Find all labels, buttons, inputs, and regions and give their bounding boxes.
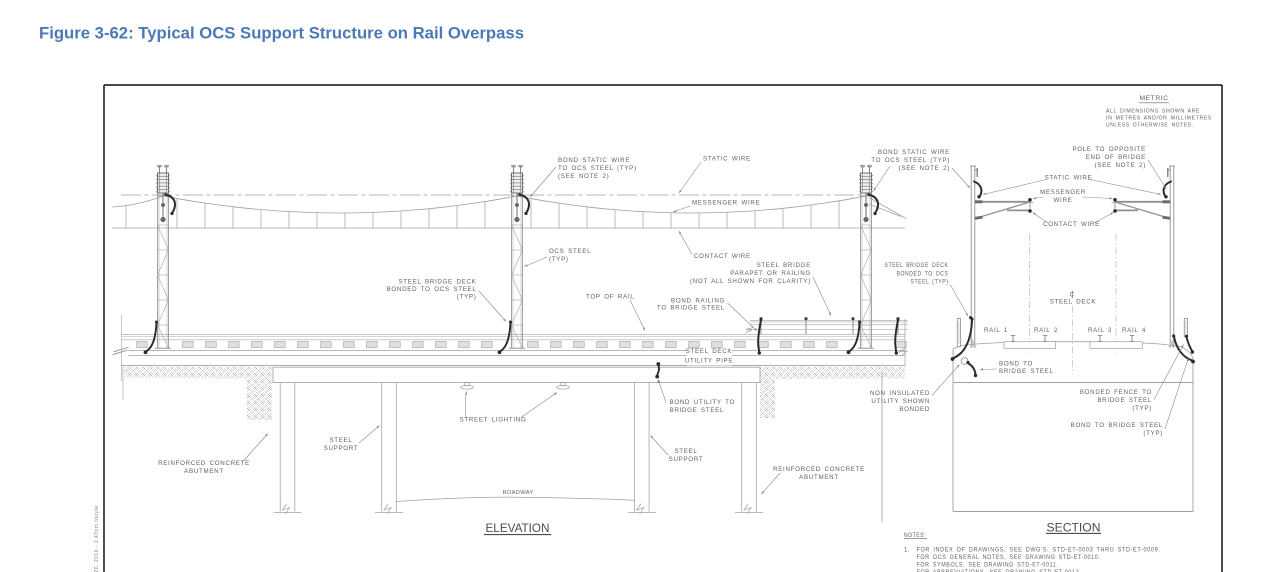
svg-text:(TYP): (TYP) — [457, 294, 477, 301]
svg-text:SUPPORT: SUPPORT — [669, 456, 704, 463]
svg-text:FOR INDEX OF DRAWINGS, SEE DWG: FOR INDEX OF DRAWINGS, SEE DWG'S. STD-ET… — [917, 548, 1161, 554]
svg-text:PARAPET OR RAILING: PARAPET OR RAILING — [730, 270, 811, 277]
svg-text:NON INSULATED: NON INSULATED — [870, 390, 930, 397]
svg-text:BRIDGE STEEL: BRIDGE STEEL — [999, 368, 1054, 375]
svg-text:STEEL (TYP): STEEL (TYP) — [911, 279, 949, 286]
svg-text:BOND TO BRIDGE STEEL: BOND TO BRIDGE STEEL — [1071, 422, 1163, 429]
svg-text:STATIC WIRE: STATIC WIRE — [1045, 175, 1093, 182]
svg-text:UTILITY PIPE: UTILITY PIPE — [685, 358, 733, 365]
svg-text:RAIL 1: RAIL 1 — [984, 327, 1008, 334]
svg-text:POLE TO OPPOSITE: POLE TO OPPOSITE — [1072, 146, 1146, 153]
svg-text:STATIC WIRE: STATIC WIRE — [703, 156, 751, 163]
svg-text:TO BRIDGE STEEL: TO BRIDGE STEEL — [657, 305, 725, 312]
svg-text:1.: 1. — [904, 548, 910, 554]
svg-text:METRIC: METRIC — [1140, 95, 1169, 102]
svg-text:STEEL DECK: STEEL DECK — [1050, 298, 1097, 305]
svg-text:END OF BRIDGE: END OF BRIDGE — [1086, 154, 1146, 161]
svg-text:OCS STEEL: OCS STEEL — [549, 248, 591, 255]
svg-text:UNLESS OTHERWISE NOTED.: UNLESS OTHERWISE NOTED. — [1106, 123, 1194, 129]
svg-text:SUPPORT: SUPPORT — [324, 445, 359, 452]
svg-text:Figure 3-62: Typical OCS Suppo: Figure 3-62: Typical OCS Support Structu… — [39, 24, 524, 42]
svg-text:BONDED TO OCS STEEL: BONDED TO OCS STEEL — [387, 286, 477, 293]
svg-text:BRIDGE STEEL: BRIDGE STEEL — [670, 407, 725, 414]
svg-text:RAIL 2: RAIL 2 — [1034, 327, 1058, 334]
svg-text:ELEVATION: ELEVATION — [486, 521, 550, 535]
svg-text:WIRE: WIRE — [1054, 197, 1073, 204]
svg-text:MESSENGER: MESSENGER — [1040, 189, 1086, 196]
svg-text:STEEL: STEEL — [674, 448, 697, 455]
svg-text:(TYP): (TYP) — [549, 256, 569, 263]
svg-text:STEEL: STEEL — [329, 437, 352, 444]
svg-text:FOR OCS GENERAL NOTES, SEE DRA: FOR OCS GENERAL NOTES, SEE DRAWING STD-E… — [917, 555, 1101, 561]
svg-text:CONTACT WIRE: CONTACT WIRE — [1043, 221, 1100, 228]
svg-text:SECTION: SECTION — [1047, 521, 1101, 535]
svg-text:(NOT ALL SHOWN FOR CLARITY): (NOT ALL SHOWN FOR CLARITY) — [690, 278, 811, 285]
svg-text:BOND STATIC WIRE: BOND STATIC WIRE — [558, 157, 630, 164]
svg-text:BOND RAILING: BOND RAILING — [671, 298, 725, 305]
svg-text:FOR SYMBOLS, SEE DRAWING STD-E: FOR SYMBOLS, SEE DRAWING STD-ET-0011. — [917, 563, 1059, 569]
svg-text:BOND STATIC WIRE: BOND STATIC WIRE — [878, 149, 950, 156]
svg-text:ABUTMENT: ABUTMENT — [799, 474, 839, 481]
svg-text:STEEL BRIDGE: STEEL BRIDGE — [757, 262, 811, 269]
svg-text:ABUTMENT: ABUTMENT — [184, 468, 224, 475]
svg-text:REINFORCED CONCRETE: REINFORCED CONCRETE — [158, 460, 250, 467]
svg-text:STEEL DECK: STEEL DECK — [686, 348, 733, 355]
svg-text:(TYP): (TYP) — [1143, 430, 1163, 437]
svg-text:BONDED: BONDED — [899, 406, 930, 413]
svg-text:REINFORCED CONCRETE: REINFORCED CONCRETE — [773, 466, 865, 473]
svg-text:(SEE NOTE 2): (SEE NOTE 2) — [1095, 162, 1146, 169]
svg-text:BONDED TO OCS: BONDED TO OCS — [897, 271, 949, 278]
svg-text:ROADWAY: ROADWAY — [503, 490, 534, 496]
svg-text:IN METRES AND/OR MILLIMETRES: IN METRES AND/OR MILLIMETRES — [1106, 116, 1212, 122]
svg-text:TO OCS STEEL (TYP): TO OCS STEEL (TYP) — [871, 157, 950, 164]
svg-text:TOP OF RAIL: TOP OF RAIL — [586, 294, 634, 301]
svg-text:NOTES:: NOTES: — [904, 533, 926, 539]
svg-text:26, 2016 - 1:47pm tdoyle: 26, 2016 - 1:47pm tdoyle — [94, 506, 100, 572]
svg-text:RAIL 4: RAIL 4 — [1122, 327, 1146, 334]
svg-text:ALL DIMENSIONS SHOWN ARE: ALL DIMENSIONS SHOWN ARE — [1106, 109, 1200, 115]
svg-text:(TYP): (TYP) — [1132, 405, 1152, 412]
svg-text:STEEL BRIDGE DECK: STEEL BRIDGE DECK — [398, 278, 476, 285]
svg-text:BRIDGE STEEL: BRIDGE STEEL — [1097, 397, 1152, 404]
svg-text:(SEE NOTE 2): (SEE NOTE 2) — [899, 165, 950, 172]
svg-text:RAIL 3: RAIL 3 — [1088, 327, 1112, 334]
svg-text:STEEL BRIDGE DECK: STEEL BRIDGE DECK — [885, 262, 949, 269]
svg-text:CONTACT WIRE: CONTACT WIRE — [694, 253, 751, 260]
svg-text:UTILITY SHOWN: UTILITY SHOWN — [871, 398, 930, 405]
svg-text:(SEE NOTE 2): (SEE NOTE 2) — [558, 173, 609, 180]
svg-text:STREET LIGHTING: STREET LIGHTING — [460, 417, 527, 424]
svg-text:MESSENGER WIRE: MESSENGER WIRE — [692, 200, 760, 207]
svg-text:BONDED FENCE TO: BONDED FENCE TO — [1080, 389, 1152, 396]
svg-text:BOND TO: BOND TO — [999, 361, 1033, 368]
svg-text:TO OCS STEEL (TYP): TO OCS STEEL (TYP) — [558, 165, 637, 172]
svg-text:BOND UTILITY TO: BOND UTILITY TO — [670, 399, 736, 406]
